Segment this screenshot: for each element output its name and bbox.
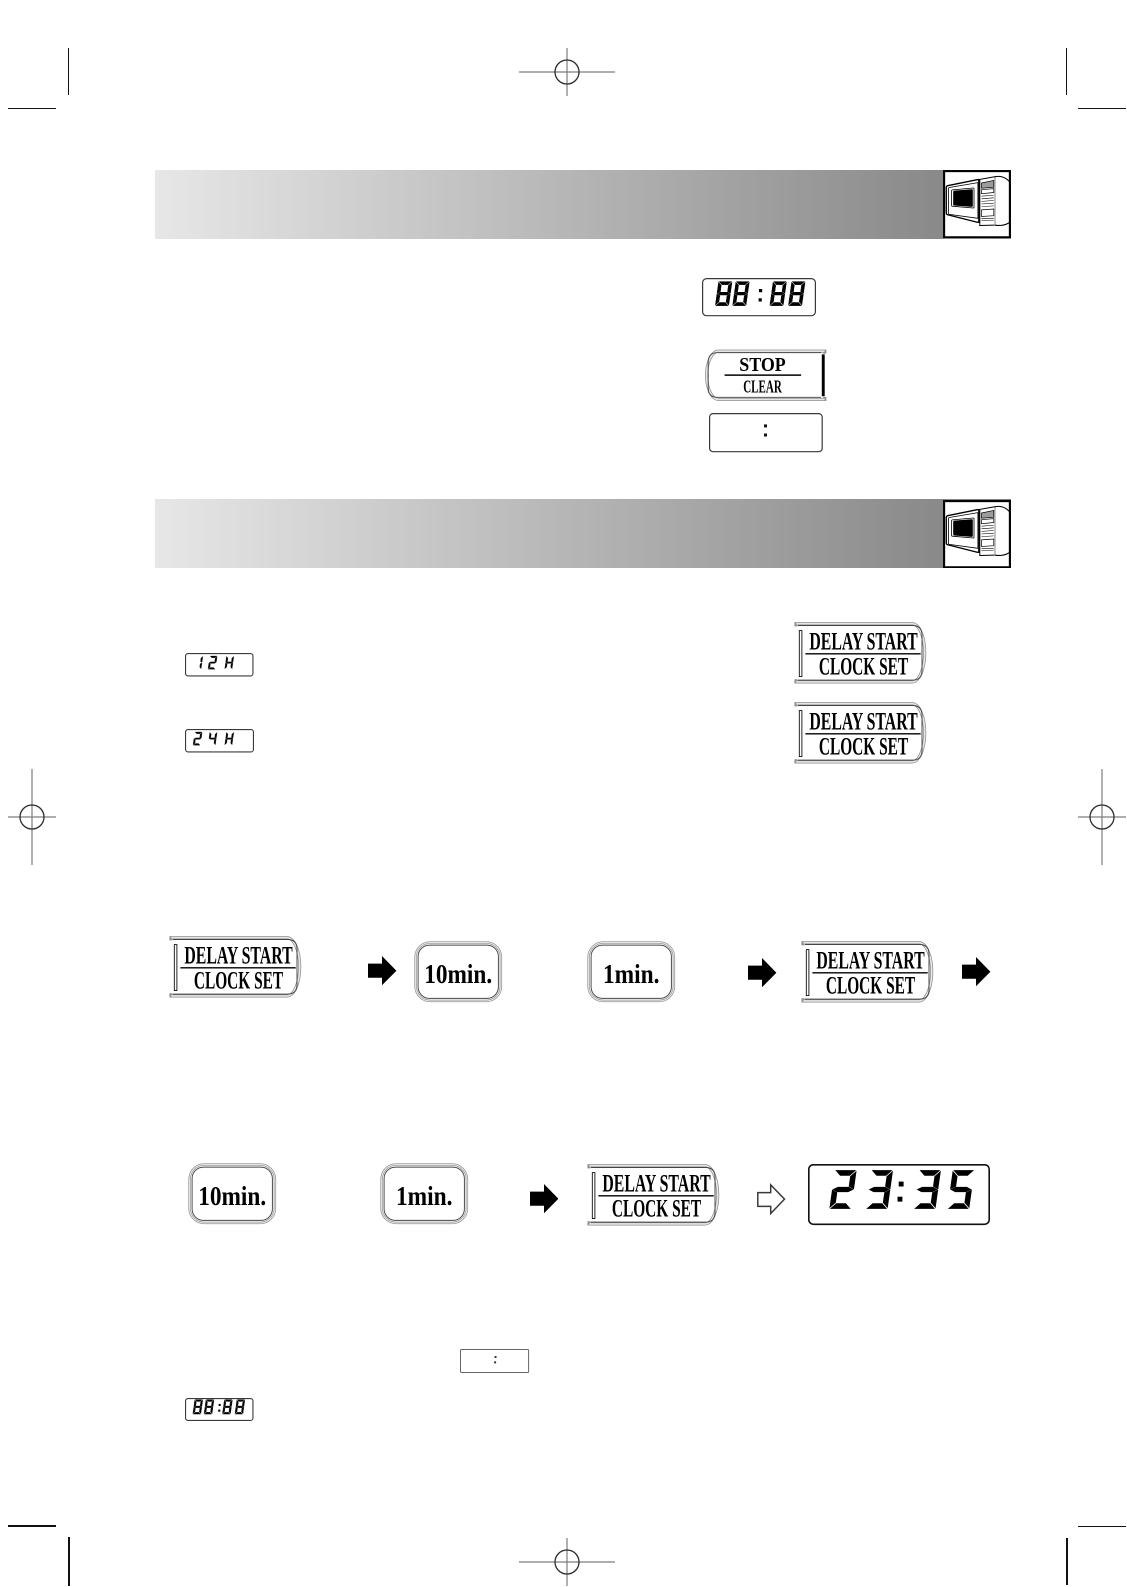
svg-text:DELAY START: DELAY START	[809, 629, 918, 656]
svg-text:DELAY START: DELAY START	[603, 1170, 712, 1197]
svg-text:1min.: 1min.	[603, 959, 660, 989]
svg-text:DELAY START: DELAY START	[184, 942, 293, 969]
svg-text:CLOCK SET: CLOCK SET	[612, 1195, 701, 1222]
svg-text:DELAY START: DELAY START	[809, 709, 918, 736]
svg-text:CLOCK SET: CLOCK SET	[826, 972, 915, 999]
svg-text:CLOCK SET: CLOCK SET	[818, 734, 907, 761]
svg-text:10min.: 10min.	[198, 1181, 266, 1211]
svg-text:CLEAR: CLEAR	[743, 376, 782, 396]
svg-text:DELAY START: DELAY START	[817, 947, 926, 974]
svg-text:10min.: 10min.	[424, 959, 492, 989]
svg-text:STOP: STOP	[739, 354, 786, 376]
svg-text:CLOCK SET: CLOCK SET	[193, 967, 282, 994]
svg-text:CLOCK SET: CLOCK SET	[818, 654, 907, 681]
svg-text:1min.: 1min.	[396, 1181, 453, 1211]
